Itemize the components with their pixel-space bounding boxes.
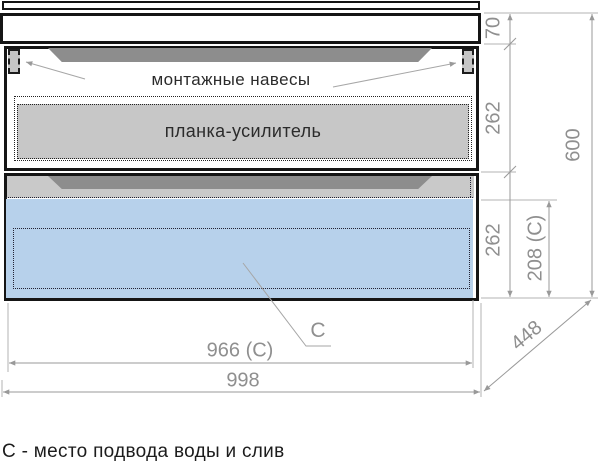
dim-total-height: 600 <box>563 128 586 161</box>
dim-drawer2-height: 262 <box>483 223 506 256</box>
dim-top-section-height: 70 <box>483 17 506 39</box>
c-zone-side-outline <box>470 177 471 197</box>
dim-total-width: 998 <box>226 370 259 393</box>
c-marker-label: С <box>310 319 325 343</box>
dim-depth: 448 <box>507 316 547 355</box>
reinforcement-bar: планка-усилитель <box>17 104 469 159</box>
c-zone-inner-outline <box>13 228 470 289</box>
caption: С - место подвода воды и слив <box>2 441 285 463</box>
countertop-band <box>0 13 481 44</box>
wall-mount-rail <box>2 1 480 10</box>
mounting-hangers-label: монтажные навесы <box>111 70 351 90</box>
dim-c-zone-height: 208 (С) <box>525 215 548 282</box>
dim-c-zone-width: 966 (С) <box>207 340 274 363</box>
dim-drawer1-height: 262 <box>483 101 506 134</box>
mounting-hanger-left-icon <box>8 49 20 74</box>
c-zone-top-outline <box>6 197 473 198</box>
handle-recess-drawer-1 <box>48 48 432 62</box>
mounting-hanger-right-icon <box>462 49 474 74</box>
handle-recess-drawer-2 <box>48 176 432 189</box>
